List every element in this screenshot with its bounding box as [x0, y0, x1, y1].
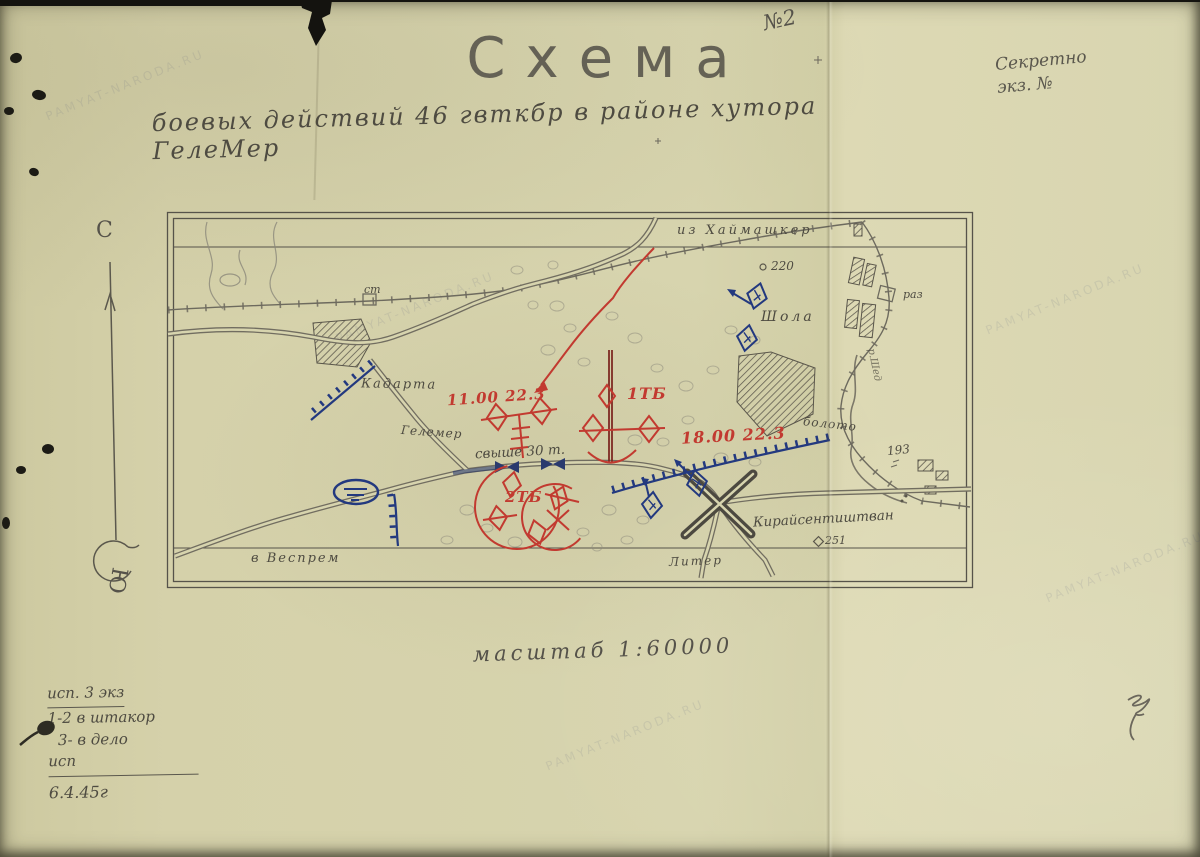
distribution-notes: исп. 3 экз 1-2 в штакор 3- в дело исп 6.…: [47, 681, 199, 805]
label-bridge-capacity: свыше 30 т.: [475, 444, 566, 462]
note-date: 6.4.45г: [49, 775, 199, 805]
paper-fold: [826, 0, 833, 857]
page-title: Схема: [408, 26, 808, 91]
label-time-1800: 18.00 22.3: [681, 425, 786, 446]
compass-south-label: Ю: [103, 565, 132, 595]
label-from-hajmasker: из Хаймашкер: [677, 224, 813, 237]
paper-crease: [313, 0, 320, 200]
label-gelemer: Гелемер: [401, 424, 463, 440]
note-addressee-1: 1-2 в штакор: [47, 705, 197, 729]
label-river-sed: р.Шед: [865, 348, 882, 383]
note-executor: исп: [48, 749, 198, 777]
label-kadarta: Кадарта: [361, 377, 437, 391]
page-subtitle: боевых действий 46 гвткбр в районе хутор…: [151, 91, 852, 165]
map-scale: масштаб 1:60000: [468, 633, 739, 666]
battle-map: из Хаймашкер ст Кадарта Гелемер свыше 30…: [165, 210, 975, 590]
watermark: PAMYAT-NARODA.RU: [1044, 529, 1200, 606]
scanned-map-document: PAMYAT-NARODA.RU PAMYAT-NARODA.RU PAMYAT…: [0, 0, 1200, 857]
label-shola: Шола: [761, 310, 815, 324]
label-height-220: 220: [771, 260, 794, 272]
note-copies: исп. 3 экз: [47, 682, 125, 708]
note-addressee-2: 3- в дело: [48, 727, 198, 751]
label-height-193: 193: [886, 443, 910, 457]
secrecy-stamp: Секретно экз. №: [994, 46, 1089, 100]
label-kiralyszentistvan: Кирайсентиштван: [753, 509, 894, 530]
label-station: ст: [364, 284, 381, 295]
compass-arrow: [94, 262, 139, 581]
map-labels: из Хаймашкер ст Кадарта Гелемер свыше 30…: [165, 210, 975, 590]
compass-north-label: С: [96, 218, 113, 243]
label-to-veszprem: в Веспрем: [251, 552, 340, 565]
label-1st-tank-battalion: 1ТБ: [627, 386, 667, 402]
watermark: PAMYAT-NARODA.RU: [984, 261, 1147, 338]
label-siding: раз: [903, 289, 923, 300]
signature-squiggle: [1128, 696, 1149, 740]
punch-holes: [2, 52, 54, 529]
watermark: PAMYAT-NARODA.RU: [544, 697, 707, 774]
label-2nd-tank-battalion: 2ТБ: [505, 490, 542, 505]
label-liter: Литер: [669, 554, 723, 568]
label-time-1100: 11.00 22.3: [447, 387, 547, 409]
